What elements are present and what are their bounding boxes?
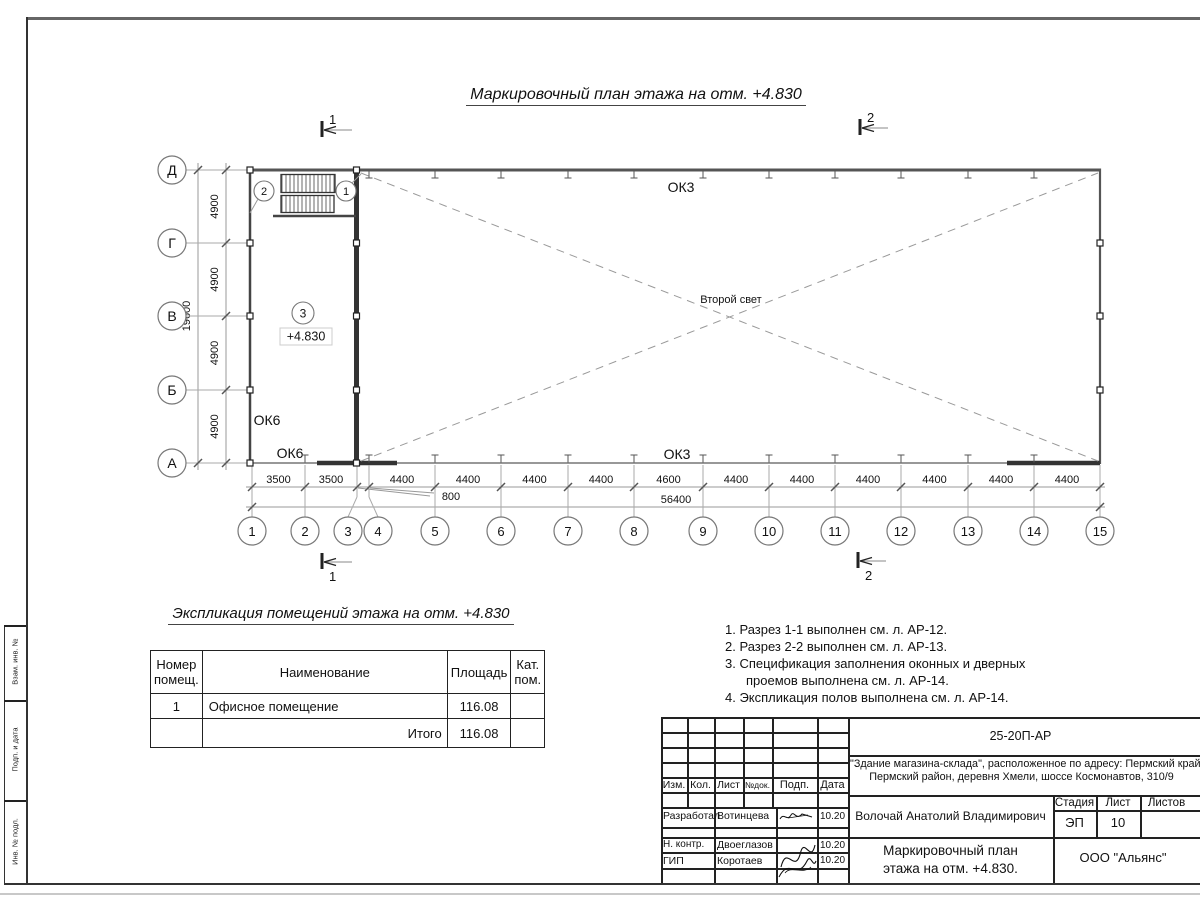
col-dim-label: 4400 (1055, 474, 1079, 486)
svg-text:1: 1 (329, 569, 336, 584)
col-dim-label: 4400 (922, 474, 946, 486)
frame-outer-left-line (4, 625, 5, 883)
grid-col-label: 9 (699, 524, 706, 539)
doc-number: 25-20П-АР (848, 729, 1193, 743)
column-marker (354, 167, 360, 173)
table-total-row: Итого 116.08 (151, 719, 545, 748)
list-header: Лист (1096, 797, 1140, 810)
rev-header-ndok: №док. (743, 781, 772, 791)
company-name: ООО "Альянс" (1053, 851, 1193, 866)
table-title-text: Экспликация помещений этажа на отм. +4.8… (168, 605, 513, 625)
total-area: 116.08 (447, 719, 511, 748)
side-stamp-divider (4, 700, 26, 702)
rev-header-list: Лист (714, 779, 743, 791)
column-marker (354, 240, 360, 246)
stair-flight-lower (281, 196, 334, 213)
col-header-category: Кат.пом. (511, 651, 545, 694)
row-dim-label: 4900 (209, 341, 221, 365)
ncontr-date: 10.20 (817, 840, 848, 852)
room-explication-table: Номерпомещ. Наименование Площадь Кат.пом… (150, 650, 545, 748)
grid-col-label: 2 (301, 524, 308, 539)
room-area: 116.08 (447, 694, 511, 719)
col-dim-label: 4400 (724, 474, 748, 486)
room-category (511, 694, 545, 719)
dim-total-cols: 56400 (661, 494, 692, 506)
row-dim-label: 4900 (209, 194, 221, 218)
column-marker (354, 460, 360, 466)
developer-date: 10.20 (817, 811, 848, 823)
grid-col-label: 7 (564, 524, 571, 539)
drawing-sheet: Взам. инв. № Подп. и дата Инв. № подл. М… (0, 0, 1200, 900)
grid-col-label: 5 (431, 524, 438, 539)
stage-value: ЭП (1053, 816, 1096, 831)
room-mark-label: 3 (300, 307, 307, 321)
notes-block: 1. Разрез 1-1 выполнен см. л. АР-12. 2. … (725, 621, 1025, 706)
grid-row-label: Б (167, 382, 176, 398)
note-line: 3. Спецификация заполнения оконных и две… (725, 655, 1025, 672)
window-label-ok3-bottom: ОК3 (664, 446, 691, 462)
row-dim-label: 4900 (209, 267, 221, 291)
grid-col-label: 11 (828, 524, 842, 539)
chief-name: Волочай Анатолий Владимирович (848, 810, 1053, 824)
table-title: Экспликация помещений этажа на отм. +4.8… (159, 605, 523, 622)
col-header-area: Площадь (447, 651, 511, 694)
grid-row-label: Г (168, 235, 176, 251)
grid-col-label: 4 (374, 524, 381, 539)
sheet-name-line2: этажа на отм. +4.830. (848, 861, 1053, 877)
column-marker (247, 387, 253, 393)
note-line: 2. Разрез 2-2 выполнен см. л. АР-13. (725, 638, 1025, 655)
col-dim-label: 4400 (589, 474, 613, 486)
listov-header: Листов (1140, 797, 1193, 810)
door-mark-2-label: 2 (261, 186, 267, 198)
second-light-label: Второй свет (700, 294, 761, 306)
grid-row-label: А (167, 455, 177, 471)
list-value: 10 (1096, 816, 1140, 831)
rev-header-kol: Кол. (687, 779, 714, 791)
side-stamp-inv: Инв. № подл. (11, 806, 20, 878)
window-label-ok6-lower: ОК6 (277, 445, 304, 461)
col-dim-label: 4400 (456, 474, 480, 486)
room-number: 1 (151, 694, 203, 719)
column-marker (247, 313, 253, 319)
section-mark-2-top: 2 (860, 110, 888, 135)
grid-col-label: 6 (497, 524, 504, 539)
rev-header-podp: Подп. (772, 779, 817, 792)
sheet-edge-shadow (0, 893, 1200, 895)
grid-col-label: 13 (961, 524, 975, 539)
note-line: 4. Экспликация полов выполнена см. л. АР… (725, 689, 1025, 706)
gip-date: 10.20 (817, 855, 848, 867)
column-marker (247, 460, 253, 466)
column-marker (354, 313, 360, 319)
room-name: Офисное помещение (202, 694, 447, 719)
column-marker (247, 240, 253, 246)
rev-header-izm: Изм. (661, 779, 687, 791)
column-marker (1097, 240, 1103, 246)
note-line: проемов выполнена см. л. АР-14. (725, 672, 1025, 689)
window-label-ok3-top: ОК3 (668, 179, 695, 195)
table-row: 1 Офисное помещение 116.08 (151, 694, 545, 719)
col-dim-label: 3500 (266, 474, 290, 486)
section-mark-2-bottom: 2 (858, 552, 886, 583)
stair-flight-upper (281, 175, 335, 193)
col-header-number: Номерпомещ. (151, 651, 203, 694)
grid-col-label: 3 (344, 524, 351, 539)
developer-role: Разработал (663, 810, 720, 822)
grid-col-label: 10 (762, 524, 776, 539)
ncontr-name: Двоеглазов (717, 839, 773, 851)
floor-plan: 56400 19600 800 ОК3 ОК3 ОК6 ОК6 Второй с… (0, 0, 1200, 615)
column-marker (354, 387, 360, 393)
sheet-name-line1: Маркировочный план (848, 843, 1053, 859)
grid-col-label: 1 (248, 524, 255, 539)
title-block: Изм. Кол. Лист №док. Подп. Дата Разработ… (661, 717, 1200, 884)
developer-name: Вотинцева (717, 810, 769, 822)
col-dim-label: 4400 (856, 474, 880, 486)
window-label-ok6-upper: ОК6 (254, 412, 281, 428)
section-mark-1-bottom: 1 (322, 553, 352, 584)
column-marker (1097, 387, 1103, 393)
ncontr-role: Н. контр. (663, 839, 704, 851)
col-dim-label: 4400 (522, 474, 546, 486)
total-label: Итого (202, 719, 447, 748)
grid-row-label: Д (167, 162, 177, 178)
col-dim-label: 4400 (790, 474, 814, 486)
col-dim-label: 4400 (390, 474, 414, 486)
grid-col-label: 15 (1093, 524, 1107, 539)
section-mark-1-top: 1 (322, 112, 352, 137)
side-stamp-divider (4, 800, 26, 802)
column-marker (1097, 313, 1103, 319)
side-stamp-podp: Подп. и дата (11, 714, 20, 786)
gip-name: Коротаев (717, 855, 762, 867)
column-marker (247, 167, 253, 173)
signature-dvoeglazov-korotaev (777, 837, 817, 883)
col-dim-label: 3500 (319, 474, 343, 486)
col-header-name: Наименование (202, 651, 447, 694)
col-dim-label: 4600 (656, 474, 680, 486)
grid-row-label: В (167, 308, 176, 324)
row-dim-label: 4900 (209, 414, 221, 438)
stage-header: Стадия (1053, 797, 1096, 810)
elevation-label: +4.830 (287, 330, 326, 344)
dim-800-label: 800 (442, 491, 460, 503)
svg-text:2: 2 (865, 568, 872, 583)
note-line: 1. Разрез 1-1 выполнен см. л. АР-12. (725, 621, 1025, 638)
svg-text:1: 1 (329, 112, 336, 127)
project-line2: Пермский район, деревня Хмели, шоссе Кос… (850, 771, 1193, 783)
door-mark-1-label: 1 (343, 186, 349, 198)
gip-role: ГИП (663, 855, 684, 867)
signature-votintseva (778, 809, 815, 824)
rev-header-data: Дата (817, 779, 848, 792)
grid-col-label: 14 (1027, 524, 1041, 539)
grid-col-label: 12 (894, 524, 908, 539)
col-dim-label: 4400 (989, 474, 1013, 486)
grid-col-label: 8 (630, 524, 637, 539)
svg-text:2: 2 (867, 110, 874, 125)
project-line1: "Здание магазина-склада", расположенное … (850, 758, 1193, 770)
side-stamp-vzam: Взам. инв. № (11, 626, 20, 698)
